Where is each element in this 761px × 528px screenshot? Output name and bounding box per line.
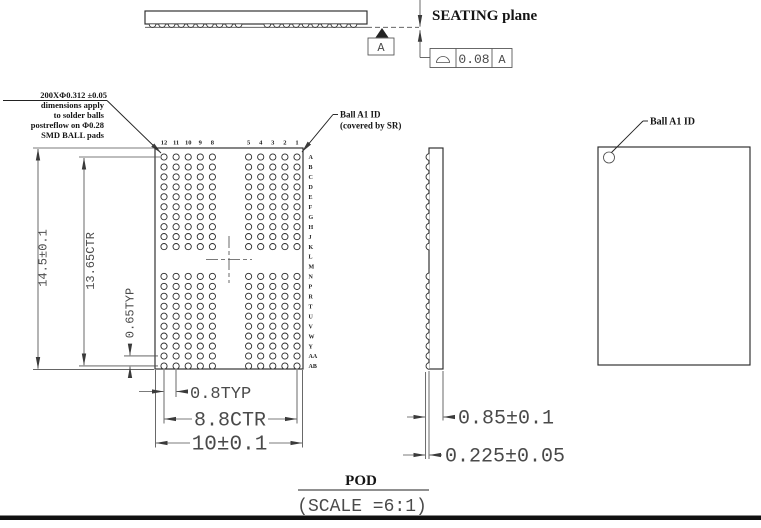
solder-ball <box>282 244 288 250</box>
solder-ball <box>185 154 191 160</box>
solder-ball <box>209 353 215 359</box>
solder-ball <box>246 204 252 210</box>
solder-ball-bump <box>426 233 429 240</box>
solder-ball <box>270 224 276 230</box>
solder-ball <box>209 244 215 250</box>
solder-ball <box>161 273 167 279</box>
solder-ball <box>294 174 300 180</box>
row-label: C <box>309 175 313 181</box>
dim-rows-span: 13.65CTR <box>84 232 98 290</box>
solder-ball <box>270 273 276 279</box>
solder-ball <box>173 303 179 309</box>
solder-ball <box>270 353 276 359</box>
solder-ball <box>282 323 288 329</box>
solder-ball <box>185 184 191 190</box>
solder-ball <box>173 333 179 339</box>
solder-ball <box>197 283 203 289</box>
solder-ball <box>209 313 215 319</box>
solder-ball <box>294 353 300 359</box>
solder-ball <box>294 194 300 200</box>
solder-ball <box>185 214 191 220</box>
solder-ball <box>258 273 264 279</box>
solder-ball <box>197 214 203 220</box>
solder-ball-bump <box>426 213 429 220</box>
solder-ball <box>270 184 276 190</box>
solder-ball <box>294 303 300 309</box>
solder-ball <box>185 363 191 369</box>
solder-ball <box>185 343 191 349</box>
column-label: 10 <box>185 140 192 147</box>
solder-ball <box>246 194 252 200</box>
solder-ball <box>209 154 215 160</box>
solder-ball <box>294 273 300 279</box>
dim-body-width: 10±0.1 <box>192 434 268 457</box>
a1-leader <box>302 115 333 153</box>
a1-note-line: (covered by SR) <box>340 121 401 131</box>
solder-ball-bump <box>426 154 429 161</box>
solder-ball <box>197 164 203 170</box>
row-label: K <box>309 245 314 251</box>
solder-ball-bump <box>426 243 429 250</box>
solder-ball <box>209 164 215 170</box>
row-label: W <box>309 334 315 340</box>
note-line: dimensions apply <box>41 100 105 110</box>
a1-note-line: Ball A1 ID <box>340 110 381 120</box>
solder-ball <box>173 363 179 369</box>
solder-ball <box>258 323 264 329</box>
solder-ball <box>270 194 276 200</box>
solder-ball <box>185 174 191 180</box>
solder-ball <box>161 283 167 289</box>
solder-ball <box>294 323 300 329</box>
dim-col-pitch: 0.8TYP <box>190 385 251 404</box>
solder-ball <box>282 234 288 240</box>
solder-ball <box>173 244 179 250</box>
solder-ball <box>197 333 203 339</box>
solder-ball <box>270 214 276 220</box>
solder-ball <box>246 313 252 319</box>
solder-ball <box>161 363 167 369</box>
solder-ball <box>209 184 215 190</box>
dim-cols-span: 8.8CTR <box>194 410 266 433</box>
fcf-tolerance: 0.08 <box>458 52 489 67</box>
ball-spec-note: 200XΦ0.312 ±0.05 dimensions apply to sol… <box>3 90 161 153</box>
package-body-side <box>145 11 367 24</box>
solder-ball <box>209 293 215 299</box>
solder-ball <box>161 323 167 329</box>
solder-ball <box>209 333 215 339</box>
solder-ball <box>161 184 167 190</box>
solder-ball <box>282 174 288 180</box>
solder-ball <box>209 224 215 230</box>
solder-ball <box>161 293 167 299</box>
column-label: 1 <box>295 140 298 147</box>
solder-ball <box>173 323 179 329</box>
column-label: 8 <box>211 140 215 147</box>
ball-a1-id-marker <box>604 152 615 163</box>
solder-ball <box>258 184 264 190</box>
solder-ball-bump <box>426 164 429 171</box>
solder-ball-bump <box>426 273 429 280</box>
solder-ball <box>258 343 264 349</box>
solder-ball <box>185 303 191 309</box>
solder-ball <box>197 303 203 309</box>
solder-ball <box>185 333 191 339</box>
solder-ball <box>209 273 215 279</box>
left-dimensions: 14.5±0.1 13.65CTR 0.65TYP <box>33 148 160 378</box>
row-label: M <box>309 265 315 271</box>
solder-ball <box>270 323 276 329</box>
note-line: SMD BALL pads <box>41 130 105 140</box>
solder-ball <box>258 363 264 369</box>
solder-ball <box>258 353 264 359</box>
solder-ball <box>246 303 252 309</box>
solder-ball <box>294 224 300 230</box>
solder-ball <box>161 204 167 210</box>
row-label: N <box>309 275 314 281</box>
solder-ball <box>294 154 300 160</box>
solder-ball <box>173 184 179 190</box>
solder-ball <box>173 313 179 319</box>
solder-ball <box>197 224 203 230</box>
solder-ball <box>270 313 276 319</box>
solder-ball <box>185 224 191 230</box>
solder-ball <box>270 244 276 250</box>
dim-total-height: 0.85±0.1 <box>458 408 554 431</box>
solder-ball <box>282 194 288 200</box>
solder-ball-bump <box>426 293 429 300</box>
solder-ball <box>185 194 191 200</box>
solder-ball <box>246 363 252 369</box>
a1-top-leader <box>612 121 644 153</box>
solder-ball <box>197 293 203 299</box>
solder-ball <box>270 363 276 369</box>
solder-ball <box>209 343 215 349</box>
solder-ball <box>161 244 167 250</box>
solder-ball <box>294 293 300 299</box>
solder-ball <box>258 154 264 160</box>
solder-ball <box>209 194 215 200</box>
package-top-outline <box>598 147 750 365</box>
solder-ball <box>185 283 191 289</box>
solder-ball <box>209 363 215 369</box>
solder-ball <box>161 234 167 240</box>
solder-ball <box>282 154 288 160</box>
solder-ball <box>197 194 203 200</box>
solder-ball <box>197 154 203 160</box>
solder-ball <box>282 363 288 369</box>
seating-plane-label: SEATING plane <box>432 8 538 24</box>
sheet-border-bar <box>0 516 761 521</box>
solder-ball <box>197 234 203 240</box>
row-label: F <box>309 205 313 211</box>
solder-ball <box>282 204 288 210</box>
solder-ball <box>294 333 300 339</box>
solder-ball <box>185 323 191 329</box>
solder-ball <box>270 204 276 210</box>
solder-ball <box>246 164 252 170</box>
solder-ball-bump <box>426 313 429 320</box>
solder-ball-bump <box>426 174 429 181</box>
solder-ball <box>197 204 203 210</box>
solder-ball <box>173 224 179 230</box>
solder-ball <box>173 164 179 170</box>
solder-ball <box>282 214 288 220</box>
solder-ball <box>161 224 167 230</box>
solder-ball <box>246 323 252 329</box>
solder-ball <box>258 164 264 170</box>
fcf-datum: A <box>498 53 506 67</box>
solder-ball-bump <box>426 363 429 370</box>
solder-ball <box>282 184 288 190</box>
column-label: 4 <box>259 140 263 147</box>
row-label: V <box>309 324 314 330</box>
column-labels: 1211109854321 <box>161 140 299 147</box>
solder-ball <box>173 214 179 220</box>
solder-ball <box>282 293 288 299</box>
row-label: L <box>309 255 313 261</box>
solder-ball <box>258 194 264 200</box>
solder-ball <box>209 204 215 210</box>
solder-ball-bump <box>426 184 429 191</box>
solder-ball <box>173 273 179 279</box>
solder-ball <box>246 273 252 279</box>
dim-body-length: 14.5±0.1 <box>37 229 51 287</box>
row-label: H <box>309 225 314 231</box>
solder-ball-bump <box>426 343 429 350</box>
solder-ball <box>258 303 264 309</box>
side-seating-view: A SEATING plane 0.08 A <box>145 0 538 68</box>
solder-ball <box>282 353 288 359</box>
solder-ball <box>197 273 203 279</box>
dim-row-pitch: 0.65TYP <box>124 288 138 338</box>
view-title: POD <box>345 473 377 489</box>
solder-ball <box>173 204 179 210</box>
solder-ball <box>161 333 167 339</box>
solder-ball <box>258 333 264 339</box>
solder-ball <box>246 244 252 250</box>
solder-ball <box>197 184 203 190</box>
solder-ball <box>282 303 288 309</box>
solder-ball <box>294 283 300 289</box>
title-block: POD (SCALE =6:1) <box>297 473 429 517</box>
dim-ball-height: 0.225±0.05 <box>445 446 565 469</box>
row-label: A <box>309 155 314 161</box>
solder-ball <box>294 363 300 369</box>
solder-ball <box>161 154 167 160</box>
row-label: G <box>309 215 314 221</box>
solder-ball-bump <box>426 203 429 210</box>
note-line: 200XΦ0.312 ±0.05 <box>40 90 107 100</box>
solder-ball <box>197 363 203 369</box>
solder-ball <box>197 343 203 349</box>
solder-ball <box>209 323 215 329</box>
column-label: 12 <box>161 140 168 147</box>
solder-ball <box>270 164 276 170</box>
solder-ball <box>246 333 252 339</box>
solder-ball <box>294 204 300 210</box>
solder-ball <box>258 234 264 240</box>
column-label: 5 <box>247 140 251 147</box>
row-labels: ABCDEFGHJKLMNPRTUVWYAAAB <box>309 155 318 370</box>
package-outline-drawing: A SEATING plane 0.08 A 200XΦ0.312 ±0.05 … <box>0 0 761 528</box>
solder-ball <box>270 174 276 180</box>
solder-ball <box>282 273 288 279</box>
note-leader <box>107 101 161 154</box>
solder-ball <box>258 283 264 289</box>
solder-ball <box>185 244 191 250</box>
column-label: 3 <box>271 140 275 147</box>
solder-ball <box>294 214 300 220</box>
solder-ball <box>294 313 300 319</box>
solder-ball <box>282 224 288 230</box>
solder-ball <box>185 234 191 240</box>
solder-ball <box>270 293 276 299</box>
solder-ball <box>161 303 167 309</box>
row-label: AB <box>309 364 317 370</box>
solder-ball <box>282 164 288 170</box>
row-label: R <box>309 295 314 301</box>
package-body-profile <box>429 148 443 369</box>
solder-ball <box>294 184 300 190</box>
datum-label: A <box>377 41 385 55</box>
solder-ball <box>282 333 288 339</box>
datum-triangle-icon <box>376 28 389 38</box>
coplanarity-symbol-icon <box>437 57 450 63</box>
solder-ball <box>258 313 264 319</box>
column-label: 9 <box>199 140 203 147</box>
feature-control-frame: 0.08 A <box>430 49 512 68</box>
solder-ball <box>197 244 203 250</box>
solder-ball <box>161 353 167 359</box>
ball-grid-view: 1211109854321 ABCDEFGHJKLMNPRTUVWYAAAB B… <box>155 110 401 371</box>
solder-ball <box>258 293 264 299</box>
solder-ball <box>161 164 167 170</box>
solder-ball <box>209 303 215 309</box>
solder-ball <box>173 283 179 289</box>
solder-ball <box>185 204 191 210</box>
solder-ball <box>270 343 276 349</box>
column-label: 11 <box>173 140 179 147</box>
solder-ball <box>246 283 252 289</box>
solder-ball-bump <box>426 323 429 330</box>
solder-ball <box>258 214 264 220</box>
solder-ball <box>197 353 203 359</box>
solder-ball <box>270 234 276 240</box>
solder-ball <box>270 283 276 289</box>
solder-ball <box>209 234 215 240</box>
solder-ball <box>173 194 179 200</box>
row-label: J <box>309 235 312 241</box>
solder-ball <box>270 154 276 160</box>
a1-top-label: Ball A1 ID <box>650 117 695 128</box>
solder-ball <box>258 224 264 230</box>
solder-ball <box>161 343 167 349</box>
row-label: U <box>309 314 314 320</box>
solder-ball <box>294 244 300 250</box>
solder-ball <box>294 343 300 349</box>
note-line: to solder balls <box>54 110 105 120</box>
side-profile-view: 0.85±0.1 0.225±0.05 <box>403 148 565 469</box>
row-label: E <box>309 195 313 201</box>
solder-ball <box>246 353 252 359</box>
solder-ball <box>282 283 288 289</box>
solder-ball <box>197 313 203 319</box>
row-label: AA <box>309 354 318 360</box>
solder-ball <box>185 353 191 359</box>
solder-ball-grid <box>161 154 300 369</box>
solder-ball-bump <box>426 333 429 340</box>
solder-ball <box>294 164 300 170</box>
solder-ball <box>246 343 252 349</box>
note-line: postreflow on Φ0.28 <box>31 120 104 130</box>
solder-ball <box>282 343 288 349</box>
solder-ball <box>258 244 264 250</box>
solder-ball-bump <box>426 283 429 290</box>
solder-ball <box>173 234 179 240</box>
solder-ball-bump <box>426 223 429 230</box>
solder-ball <box>173 343 179 349</box>
solder-ball <box>270 333 276 339</box>
solder-ball <box>246 234 252 240</box>
solder-ball <box>197 323 203 329</box>
solder-ball-bump <box>426 353 429 360</box>
solder-ball <box>246 174 252 180</box>
solder-ball <box>246 184 252 190</box>
solder-ball-bump <box>426 194 429 201</box>
solder-ball <box>270 303 276 309</box>
solder-ball <box>258 174 264 180</box>
solder-ball <box>173 353 179 359</box>
bottom-dimensions: 0.8TYP 8.8CTR 10±0.1 <box>139 370 303 457</box>
solder-ball <box>209 214 215 220</box>
row-label: T <box>309 305 313 311</box>
top-view: Ball A1 ID <box>598 117 750 366</box>
solder-ball <box>173 293 179 299</box>
row-label: P <box>309 285 313 291</box>
solder-ball <box>185 313 191 319</box>
solder-ball <box>161 194 167 200</box>
solder-ball <box>294 234 300 240</box>
solder-ball <box>246 214 252 220</box>
solder-ball <box>197 174 203 180</box>
ball-a1-note: Ball A1 ID (covered by SR) <box>302 110 401 153</box>
solder-ball <box>161 313 167 319</box>
solder-ball-bump <box>426 303 429 310</box>
view-scale: (SCALE =6:1) <box>297 497 427 517</box>
solder-ball <box>161 174 167 180</box>
solder-ball <box>258 204 264 210</box>
solder-ball <box>185 293 191 299</box>
solder-ball <box>185 273 191 279</box>
solder-ball <box>185 164 191 170</box>
row-label: D <box>309 185 314 191</box>
solder-ball <box>246 154 252 160</box>
solder-ball <box>209 174 215 180</box>
solder-ball <box>173 154 179 160</box>
solder-ball <box>282 313 288 319</box>
column-label: 2 <box>283 140 286 147</box>
solder-ball <box>173 174 179 180</box>
solder-ball <box>246 293 252 299</box>
row-label: B <box>309 165 313 171</box>
row-label: Y <box>309 344 314 350</box>
solder-ball <box>246 224 252 230</box>
solder-ball <box>161 214 167 220</box>
solder-ball <box>209 283 215 289</box>
